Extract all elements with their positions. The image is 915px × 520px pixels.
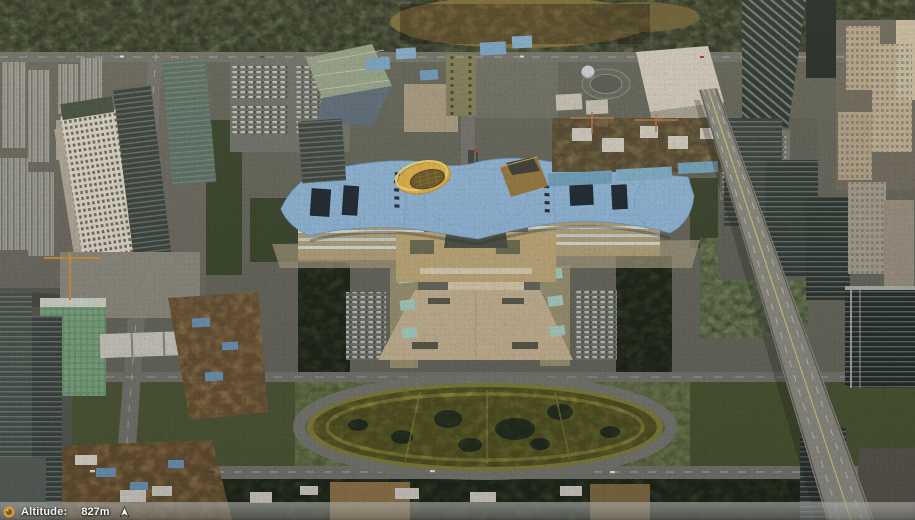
grain-overlay xyxy=(0,0,915,520)
altitude-label: Altitude: xyxy=(21,506,67,518)
globe-icon xyxy=(3,506,15,518)
status-bar: Altitude: 827m xyxy=(0,502,915,520)
north-arrow-icon xyxy=(119,506,130,518)
altitude-value: 827m xyxy=(81,506,109,518)
aerial-scene xyxy=(0,0,915,520)
map-viewport[interactable]: Altitude: 827m xyxy=(0,0,915,520)
